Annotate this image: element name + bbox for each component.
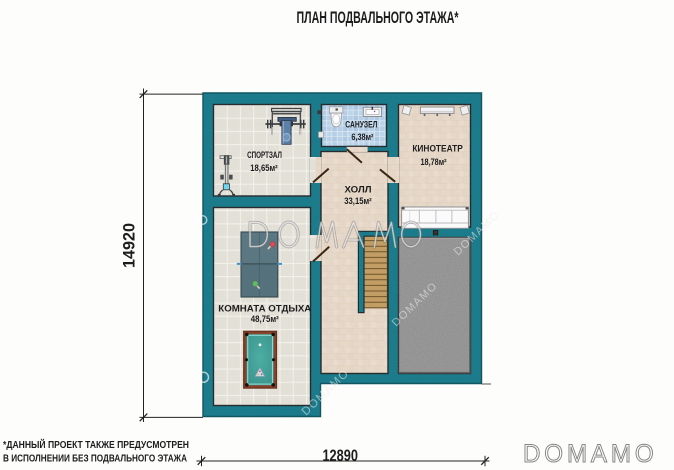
svg-text:12890: 12890 <box>322 447 358 465</box>
svg-text:DOMAMO: DOMAMO <box>523 440 658 468</box>
svg-text:14920: 14920 <box>121 223 139 268</box>
svg-text:КИНОТЕАТР: КИНОТЕАТР <box>412 144 463 154</box>
svg-text:САНУЗЕЛ: САНУЗЕЛ <box>345 120 377 130</box>
svg-text:18,78м²: 18,78м² <box>421 157 447 167</box>
svg-text:КОМНАТА ОТДЫХА: КОМНАТА ОТДЫХА <box>218 304 311 314</box>
svg-text:ХОЛЛ: ХОЛЛ <box>345 184 372 194</box>
svg-text:48,75м²: 48,75м² <box>251 314 279 324</box>
svg-text:6,38м²: 6,38м² <box>351 132 373 142</box>
svg-text:18,65м²: 18,65м² <box>250 163 278 173</box>
svg-text:СПОРТЗАЛ: СПОРТЗАЛ <box>247 150 282 160</box>
svg-text:ПЛАН ПОДВАЛЬНОГО ЭТАЖА*: ПЛАН ПОДВАЛЬНОГО ЭТАЖА* <box>297 9 459 27</box>
svg-text:33,15м²: 33,15м² <box>344 196 372 206</box>
svg-text:В ИСПОЛНЕНИИ БЕЗ ПОДВАЛЬНОГО Э: В ИСПОЛНЕНИИ БЕЗ ПОДВАЛЬНОГО ЭТАЖА <box>3 453 187 464</box>
svg-text:*ДАННЫЙ ПРОЕКТ ТАКЖЕ ПРЕДУСМОТ: *ДАННЫЙ ПРОЕКТ ТАКЖЕ ПРЕДУСМОТРЕН <box>3 438 189 451</box>
